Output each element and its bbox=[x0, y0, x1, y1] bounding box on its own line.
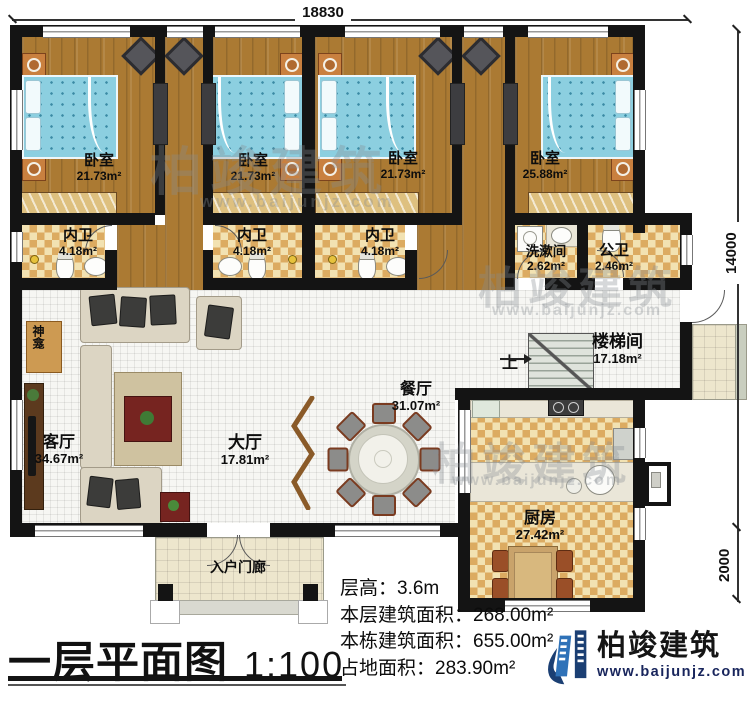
kitchen-sliding-door bbox=[459, 410, 471, 493]
bed-pillow bbox=[25, 117, 41, 151]
dining-chair bbox=[372, 495, 396, 516]
room-label-dining: 餐厅 31.07m² bbox=[371, 381, 461, 413]
porch-base bbox=[298, 600, 328, 624]
dimension-height-main: 14000 bbox=[723, 222, 740, 284]
room-label-living: 客厅 34.67m² bbox=[18, 434, 100, 466]
room-label-washroom: 洗漱间 2.62m² bbox=[514, 245, 578, 273]
wall bbox=[203, 278, 417, 290]
window bbox=[634, 428, 646, 458]
door-leaf bbox=[153, 83, 168, 145]
kitchen-pot-icon bbox=[566, 478, 582, 494]
window bbox=[634, 508, 646, 540]
wall bbox=[455, 388, 692, 400]
window bbox=[345, 26, 440, 38]
window bbox=[335, 525, 440, 537]
info-footprint: 占地面积：283.90m² bbox=[340, 656, 553, 683]
bed-pillow bbox=[321, 80, 337, 114]
kitchen-flue-inner bbox=[651, 472, 661, 488]
porch-step bbox=[178, 600, 300, 615]
wall bbox=[203, 213, 315, 225]
room-label-public-bath: 公卫 2.46m² bbox=[584, 243, 644, 273]
floor-plan: 18830 14000 2000 bbox=[0, 0, 750, 702]
wall-lamp-icon bbox=[288, 255, 297, 264]
door-leaf bbox=[503, 83, 518, 145]
wall-lamp-icon bbox=[30, 255, 39, 264]
window bbox=[464, 26, 503, 38]
wall bbox=[623, 278, 692, 290]
stove-burner bbox=[553, 402, 564, 413]
sink-icon bbox=[551, 227, 572, 244]
stairs-up-label: 上 bbox=[502, 349, 518, 373]
shrine-label: 神龛 bbox=[31, 325, 47, 367]
porch-pillar bbox=[158, 584, 173, 601]
info-block: 层高：3.6m 本层建筑面积：268.00m² 本栋建筑面积：655.00m² … bbox=[340, 576, 553, 682]
wall bbox=[505, 25, 515, 83]
kitchen-chair bbox=[492, 550, 509, 572]
nightstand bbox=[611, 157, 635, 181]
wall bbox=[10, 213, 155, 225]
stairs-arrow bbox=[500, 358, 526, 360]
wall bbox=[10, 278, 117, 290]
window bbox=[43, 26, 130, 38]
bed-pillow bbox=[25, 80, 41, 114]
bed-pillow bbox=[321, 117, 337, 151]
stove-burner bbox=[568, 402, 579, 413]
vestibule1-floor-ext bbox=[117, 225, 165, 290]
room-label-kitchen: 厨房 27.42m² bbox=[495, 510, 585, 542]
nightstand bbox=[318, 157, 342, 181]
wall bbox=[452, 25, 462, 83]
sink-icon bbox=[218, 257, 242, 276]
washing-machine-drum bbox=[523, 231, 537, 245]
room-label-bedroom2: 卧室 21.73m² bbox=[213, 153, 293, 183]
wall bbox=[203, 25, 213, 83]
vestibule2-floor bbox=[462, 37, 505, 290]
sofa-cushion bbox=[119, 296, 147, 328]
title-underline bbox=[8, 676, 342, 681]
window bbox=[681, 235, 693, 265]
bed-pillow bbox=[615, 117, 631, 151]
nightstand bbox=[22, 53, 46, 77]
window bbox=[167, 26, 203, 38]
nightstand bbox=[611, 53, 635, 77]
wall-lamp-icon bbox=[328, 255, 337, 264]
dimension-line-right bbox=[737, 30, 739, 602]
sofa-cushion bbox=[204, 304, 234, 339]
window bbox=[215, 26, 300, 38]
sofa-cushion bbox=[115, 478, 142, 510]
kitchen-sink-icon bbox=[585, 465, 615, 495]
sofa-cushion bbox=[149, 294, 177, 325]
window bbox=[11, 232, 23, 262]
room-label-hall: 大厅 17.81m² bbox=[197, 434, 293, 467]
dimension-height-ext: 2000 bbox=[716, 538, 733, 592]
sofa-cushion bbox=[86, 476, 113, 509]
wall bbox=[505, 213, 633, 225]
dining-chair bbox=[420, 448, 441, 472]
wall bbox=[155, 143, 165, 215]
plant-icon bbox=[27, 389, 39, 401]
room-label-bath1: 内卫 4.18m² bbox=[48, 228, 108, 258]
brand-url: www.baijunjz.com bbox=[597, 664, 746, 680]
bed-pillow bbox=[284, 117, 300, 151]
sofa-cushion bbox=[89, 294, 118, 327]
room-label-bath2: 内卫 4.18m² bbox=[222, 228, 282, 258]
wall bbox=[315, 213, 462, 225]
room-label-bath3: 内卫 4.18m² bbox=[350, 228, 410, 258]
info-building-area: 本栋建筑面积：655.00m² bbox=[340, 629, 553, 656]
nightstand bbox=[22, 157, 46, 181]
brand-logo-icon bbox=[543, 626, 589, 686]
nightstand bbox=[280, 53, 304, 77]
info-floor-height: 层高：3.6m bbox=[340, 576, 553, 603]
info-floor-area: 本层建筑面积：268.00m² bbox=[340, 603, 553, 630]
dimension-width: 18830 bbox=[295, 4, 351, 21]
wall bbox=[545, 278, 595, 290]
door-leaf bbox=[450, 83, 465, 145]
room-label-bedroom4: 卧室 25.88m² bbox=[505, 151, 585, 181]
wall bbox=[452, 143, 462, 215]
kitchen-chair bbox=[556, 578, 573, 600]
kitchen-chair bbox=[556, 550, 573, 572]
dining-chair bbox=[328, 448, 349, 472]
room-label-bedroom1: 卧室 21.73m² bbox=[59, 153, 139, 183]
side-door-arc bbox=[692, 290, 725, 323]
room-label-stairwell: 楼梯间 17.18m² bbox=[570, 333, 665, 366]
title-underline-thin bbox=[8, 684, 346, 686]
dish-rack-icon bbox=[613, 428, 635, 460]
window bbox=[35, 525, 143, 537]
room-label-bedroom3: 卧室 21.73m² bbox=[363, 151, 443, 181]
bed-pillow bbox=[615, 80, 631, 114]
brand-name: 柏竣建筑 bbox=[597, 632, 746, 661]
room-label-porch: 入户门廊 bbox=[188, 560, 288, 575]
plant-icon bbox=[140, 411, 154, 425]
wall bbox=[302, 25, 315, 225]
wall bbox=[155, 25, 165, 83]
window bbox=[11, 90, 23, 150]
porch-base bbox=[150, 600, 180, 624]
window bbox=[528, 26, 608, 38]
nightstand bbox=[318, 53, 342, 77]
brand-logo: 柏竣建筑 www.baijunjz.com bbox=[543, 626, 746, 686]
porch-pillar bbox=[303, 584, 318, 601]
door-leaf bbox=[201, 83, 216, 145]
fridge-icon bbox=[472, 400, 500, 418]
stairs-arrowhead bbox=[524, 354, 532, 364]
dining-table-center bbox=[374, 450, 392, 468]
plant-icon bbox=[168, 500, 179, 511]
window bbox=[634, 90, 646, 150]
bed-pillow bbox=[284, 80, 300, 114]
wall bbox=[203, 143, 213, 215]
